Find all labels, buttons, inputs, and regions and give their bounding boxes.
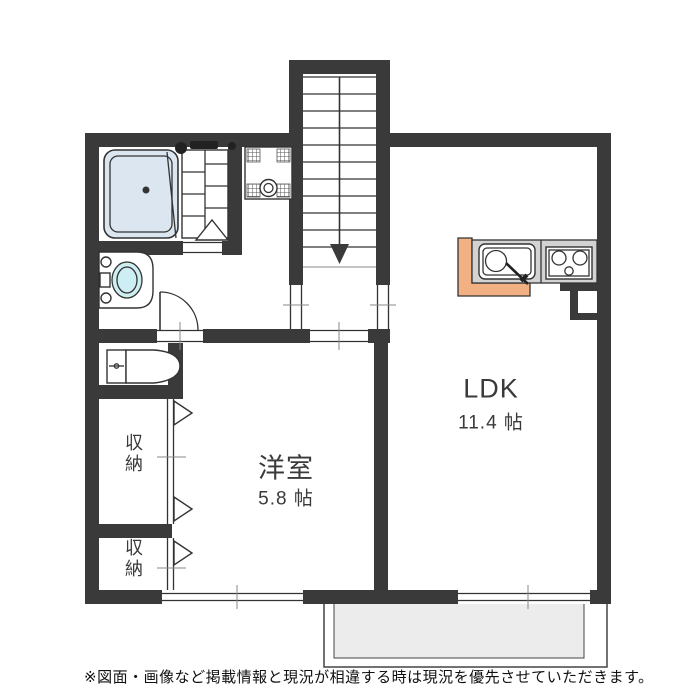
wall — [85, 133, 292, 147]
closet-bifold-doors — [157, 399, 192, 590]
washbasin — [99, 252, 153, 308]
drain-icon — [260, 180, 277, 197]
kitchen-sink — [479, 244, 535, 284]
room-label-storage-lower: 収納 — [123, 538, 145, 580]
toilet — [107, 350, 180, 383]
wall — [222, 241, 242, 255]
wall — [85, 524, 172, 538]
wall — [203, 329, 310, 343]
doorway — [283, 285, 309, 329]
balcony — [324, 601, 607, 667]
staircase — [303, 77, 376, 267]
wall — [597, 133, 611, 604]
washing-machine-pan — [245, 147, 292, 199]
bath-shelf — [182, 150, 228, 238]
pipe-space — [560, 283, 597, 320]
wall — [303, 590, 458, 604]
room-size-ldk: 11.4 帖 — [458, 408, 524, 435]
hinged-door — [160, 292, 198, 330]
stair-down-arrow-icon — [330, 244, 349, 264]
wall — [590, 590, 611, 604]
tap-icon — [101, 257, 111, 267]
faucet-icon — [100, 273, 110, 287]
room-label-storage-upper: 収納 — [123, 433, 145, 475]
room-size-western-room: 5.8 帖 — [258, 484, 314, 511]
doorway — [310, 322, 368, 350]
tap-icon — [101, 293, 111, 303]
wall — [228, 133, 242, 255]
sliding-window — [162, 585, 303, 609]
wall — [376, 133, 611, 147]
room-label-western-room: 洋室 — [258, 447, 314, 486]
wall — [368, 329, 390, 343]
doorway — [157, 322, 203, 350]
doorway — [183, 241, 222, 255]
drain-icon — [143, 187, 150, 194]
wall — [85, 385, 183, 399]
wall — [289, 60, 390, 74]
bathroom — [104, 141, 236, 240]
bathtub — [104, 150, 178, 238]
floor-plan-page: LDK 11.4 帖 洋室 5.8 帖 収納 収納 ※図面・画像など掲載情報と現… — [0, 0, 700, 700]
wall — [374, 343, 388, 590]
floor-plan-drawing — [0, 0, 700, 700]
room-label-ldk: LDK — [463, 374, 519, 405]
wall — [99, 329, 157, 343]
wall — [85, 590, 162, 604]
gas-stove — [546, 247, 592, 279]
doorway — [370, 285, 396, 329]
disclaimer-text: ※図面・画像など掲載情報と現況が相違する時は現況を優先させていただきます。 — [84, 666, 654, 687]
wall — [376, 60, 390, 285]
